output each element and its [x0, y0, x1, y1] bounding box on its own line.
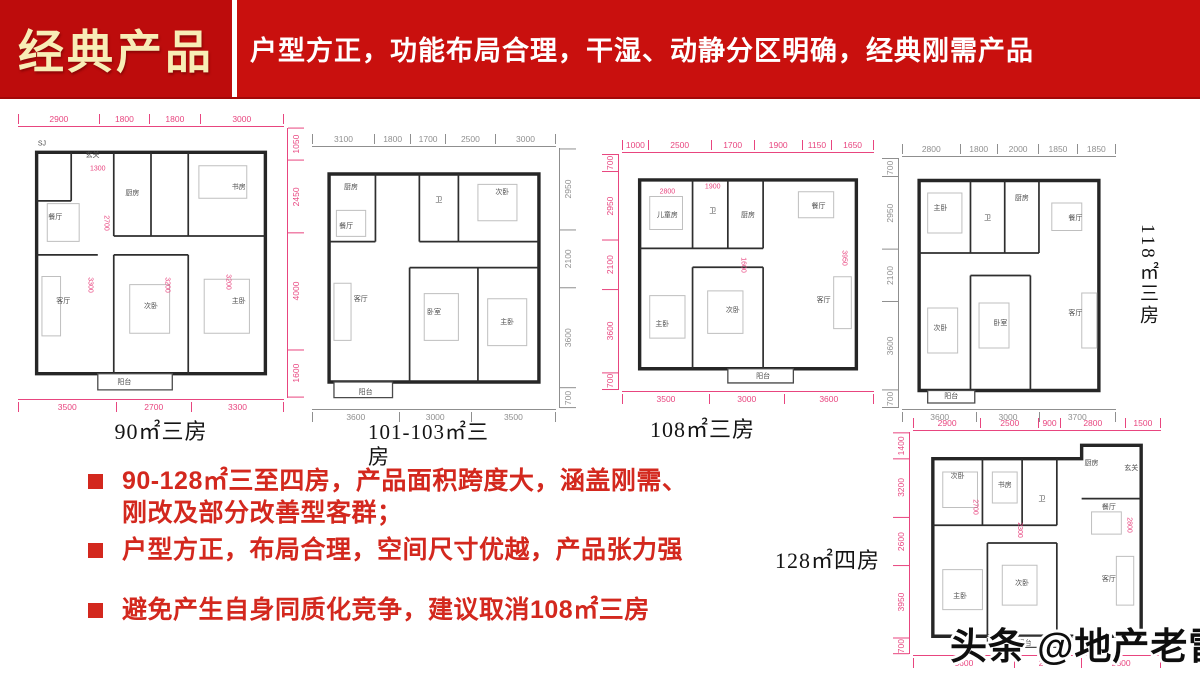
dims-side: 700295021003600700	[602, 154, 619, 390]
bullet-marker	[88, 543, 103, 558]
room-label: 厨房	[1085, 458, 1099, 468]
dimension-label: 2700	[972, 500, 979, 516]
room-label: 卧室	[427, 307, 441, 317]
dimension-label: 900	[1038, 418, 1060, 428]
dimension-label: 700	[602, 154, 618, 172]
dims-bottom: 350030003600	[622, 391, 874, 406]
dimension-label: 3600	[560, 289, 576, 388]
dimension-label: 2500	[445, 134, 495, 144]
dims-top: 2900180018003000	[18, 112, 284, 127]
room-label: 次卧	[495, 187, 509, 197]
dimension-label: 3200	[893, 459, 909, 518]
dims-side: 700295021003600700	[882, 158, 899, 408]
floorplan-101-103: 31001800170025003000 295021003600700 360…	[312, 132, 576, 424]
dimension-label: 700	[602, 373, 618, 390]
dimension-label: 1900	[754, 140, 802, 150]
room-label: 主卧	[953, 591, 967, 601]
room-label: 次卧	[934, 323, 948, 333]
header-subtitle: 户型方正，功能布局合理，干湿、动静分区明确，经典刚需产品	[237, 0, 1200, 97]
dimension-label: 2500	[648, 140, 711, 150]
room-label: 厨房	[1015, 193, 1029, 203]
dimension-label: 3200	[163, 277, 170, 293]
floorplan-drawing: 儿童房卫厨房餐厅主卧次卧客厅阳台2800190016003950	[622, 154, 874, 390]
room-label: 书房	[998, 480, 1012, 490]
room-label: 主卧	[232, 296, 246, 306]
dimension-label: 1000	[622, 140, 648, 150]
page-title-box: 经典产品	[0, 0, 232, 97]
floorplan-drawing: 主卧卫厨房餐厅次卧卧室客厅阳台	[902, 158, 1116, 408]
dimension-label: 2800	[1060, 418, 1125, 428]
room-label: 阳台	[359, 387, 373, 397]
dimension-label: 2800	[1125, 517, 1132, 533]
dimension-label: 3200	[225, 274, 232, 290]
floorplan-drawing: 厨房餐厅卫次卧客厅卧室主卧阳台	[312, 148, 556, 408]
dimension-label: 3600	[602, 290, 618, 373]
room-label: 阳台	[756, 371, 770, 381]
dimension-label: 700	[893, 639, 909, 654]
room-label: 玄关	[1124, 463, 1138, 473]
dimension-label: 1400	[893, 432, 909, 459]
bullet-list: 90-128㎡三至四房，产品面积跨度大，涵盖刚需、刚改及部分改善型客群；户型方正…	[88, 466, 778, 632]
dimension-label: 3950	[893, 566, 909, 639]
dimension-label: 1800	[149, 114, 199, 124]
dims-top: 31001800170025003000	[312, 132, 556, 147]
dimension-label: 3500	[622, 394, 709, 404]
dimension-label: 2450	[288, 161, 304, 233]
room-label: 卧室	[993, 318, 1007, 328]
dimension-label: 1900	[705, 184, 721, 191]
room-label: 厨房	[125, 188, 139, 198]
room-label: 厨房	[344, 182, 358, 192]
room-label: 餐厅	[1068, 213, 1082, 223]
dimension-label: 1650	[831, 140, 874, 150]
dimension-label: 700	[882, 390, 898, 408]
room-label: 次卧	[726, 305, 740, 315]
room-label: 卫	[984, 213, 991, 223]
dimension-label: 2500	[980, 418, 1038, 428]
room-label: 厨房	[741, 210, 755, 220]
room-label: 客厅	[1068, 308, 1082, 318]
dimension-label: 2800	[660, 188, 676, 195]
plan-area-label-90: 90㎡三房	[18, 414, 304, 446]
dimension-label: 1600	[739, 257, 746, 273]
room-label: 书房	[232, 182, 246, 192]
dimension-label: 700	[882, 158, 898, 177]
dimension-label: 2100	[560, 230, 576, 288]
watermark: 头条 @地产老雷	[950, 616, 1200, 670]
room-label: 客厅	[817, 295, 831, 305]
bullet-item: 避免产生自身同质化竞争，建议取消108㎡三房	[88, 595, 778, 627]
dimension-label: 2100	[882, 250, 898, 302]
bullet-item: 90-128㎡三至四房，产品面积跨度大，涵盖刚需、刚改及部分改善型客群；	[88, 466, 778, 530]
dimension-label: 1800	[374, 134, 410, 144]
bullet-text: 户型方正，布局合理，空间尺寸优越，产品张力强	[122, 535, 683, 567]
dimension-label: 700	[560, 388, 576, 408]
dimension-label: 3000	[200, 114, 284, 124]
room-label: 次卧	[951, 471, 965, 481]
plan-area-label-128: 128㎡四房	[775, 543, 880, 575]
dimension-label: 2000	[997, 144, 1038, 154]
room-label: 阳台	[944, 391, 958, 401]
room-label: 客厅	[1102, 574, 1116, 584]
room-label: 次卧	[1015, 578, 1029, 588]
dimension-label: 4000	[288, 233, 304, 350]
dimension-label: 3500	[18, 402, 116, 412]
floorplan-90: 2900180018003000 1050245040001600 350027…	[18, 112, 304, 414]
bullet-marker	[88, 603, 103, 618]
slide: 经典产品 户型方正，功能布局合理，干湿、动静分区明确，经典刚需产品 290018…	[0, 0, 1200, 675]
dims-top: 28001800200018501850	[902, 142, 1116, 157]
dimension-label: 1700	[711, 140, 754, 150]
dimension-label: 2950	[882, 177, 898, 250]
room-label: 卫	[1038, 494, 1045, 504]
dimension-label: 2800	[902, 144, 960, 154]
bullet-text: 90-128㎡三至四房，产品面积跨度大，涵盖刚需、刚改及部分改善型客群；	[122, 466, 710, 530]
room-label: 主卧	[655, 319, 669, 329]
floorplan-108: 100025001700190011501650 700295021003600…	[602, 138, 874, 406]
room-label: 餐厅	[812, 201, 826, 211]
dimension-label: 1500	[1125, 418, 1161, 428]
dimension-label: 3000	[709, 394, 784, 404]
dimension-label: 1850	[1077, 144, 1116, 154]
dimension-label: 2100	[602, 241, 618, 290]
dimension-label: 2300	[1016, 522, 1023, 538]
dims-side: 1050245040001600	[287, 128, 304, 398]
bullet-text: 避免产生自身同质化竞争，建议取消108㎡三房	[122, 595, 650, 627]
plan-area-label-118: 118㎡三房	[1134, 224, 1161, 327]
dimension-label: 1850	[1038, 144, 1076, 154]
dimension-label: 3100	[312, 134, 374, 144]
bullet-marker	[88, 474, 103, 489]
page-title: 经典产品	[18, 16, 214, 82]
bullet-item: 户型方正，布局合理，空间尺寸优越，产品张力强	[88, 535, 778, 567]
room-label: 主卧	[500, 317, 514, 327]
dimension-label: 3300	[191, 402, 284, 412]
room-label: 阳台	[117, 377, 131, 387]
plan-area-label-108: 108㎡三房	[650, 412, 755, 444]
dimension-label: 1800	[99, 114, 149, 124]
room-label: 儿童房	[657, 210, 678, 220]
dims-side: 1400320026003950700	[893, 432, 910, 654]
dims-bottom: 350027003300	[18, 399, 284, 414]
room-label: 餐厅	[1102, 502, 1116, 512]
dimension-label: 2900	[18, 114, 99, 124]
dimension-label: 3950	[840, 250, 847, 266]
room-label: SJ	[38, 141, 46, 148]
floorplan-118: 28001800200018501850 700295021003600700 …	[882, 142, 1116, 424]
dimension-label: 2950	[602, 172, 618, 241]
dims-top: 100025001700190011501650	[622, 138, 874, 153]
dimension-label: 3600	[882, 302, 898, 390]
dimension-label: 1600	[288, 350, 304, 398]
room-label: 餐厅	[339, 221, 353, 231]
dimension-label: 3600	[784, 394, 874, 404]
room-label: 客厅	[56, 296, 70, 306]
dimension-label: 1300	[90, 165, 106, 172]
room-label: 主卧	[934, 203, 948, 213]
dimension-label: 3300	[86, 277, 93, 293]
dimension-label: 1150	[802, 140, 831, 150]
dimension-label: 2700	[116, 402, 191, 412]
dimension-label: 2700	[102, 215, 109, 231]
room-label: 客厅	[354, 294, 368, 304]
floorplan-drawing: SJ玄关厨房书房餐厅客厅次卧主卧阳台13002700330032003200	[18, 128, 284, 398]
dims-side: 295021003600700	[559, 148, 576, 408]
room-label: 次卧	[144, 301, 158, 311]
room-label: 餐厅	[48, 212, 62, 222]
room-label: 玄关	[85, 150, 99, 160]
room-label: 卫	[435, 195, 442, 205]
plan-area-label-101: 101-103㎡三房	[368, 420, 508, 470]
dimension-label: 1800	[960, 144, 997, 154]
dimension-label: 2900	[913, 418, 980, 428]
dimension-label: 3000	[495, 134, 556, 144]
dims-top: 2900250090028001500	[913, 416, 1161, 431]
room-label: 卫	[709, 206, 716, 216]
header-banner: 经典产品 户型方正，功能布局合理，干湿、动静分区明确，经典刚需产品	[0, 0, 1200, 99]
dimension-label: 1700	[410, 134, 444, 144]
dimension-label: 2950	[560, 148, 576, 230]
dimension-label: 1050	[288, 128, 304, 161]
dimension-label: 2600	[893, 518, 909, 566]
